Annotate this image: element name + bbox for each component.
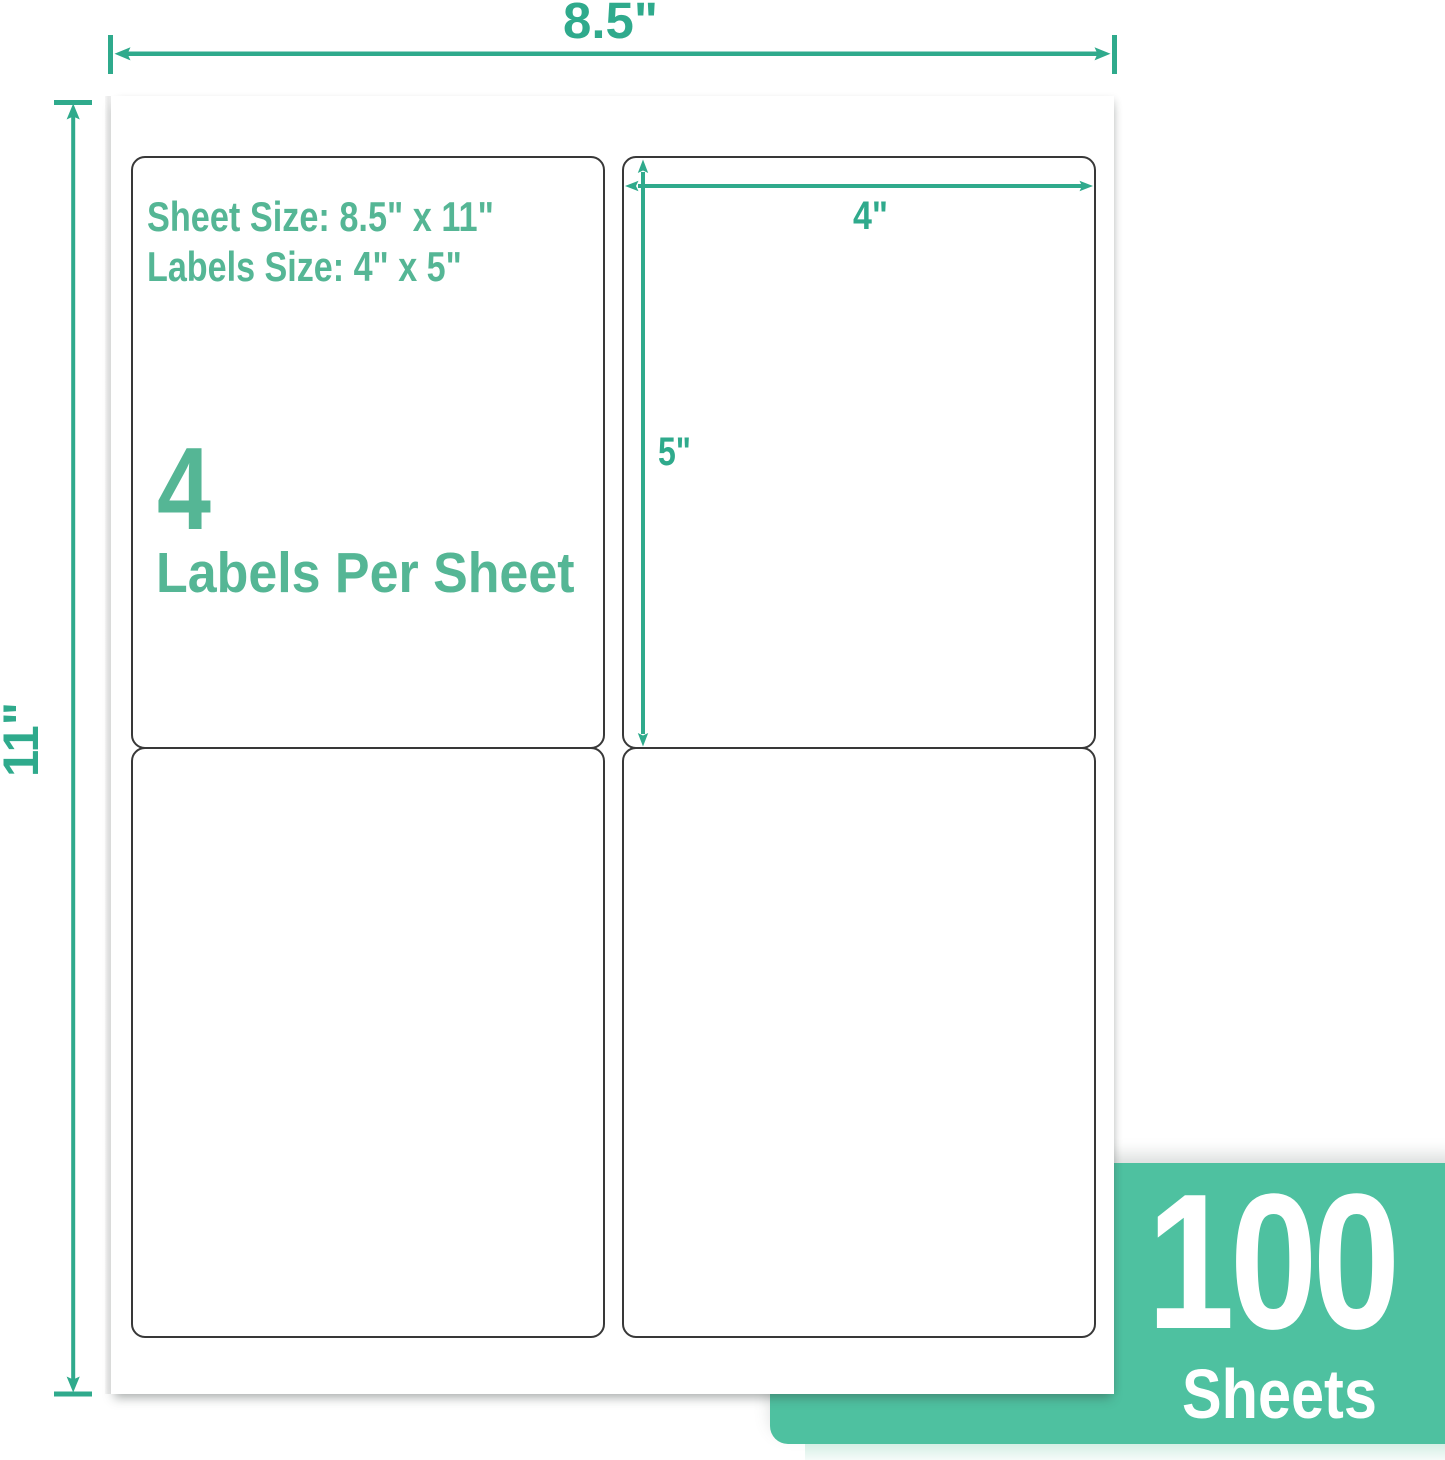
svg-text:8.5": 8.5" — [563, 0, 658, 49]
svg-text:4": 4" — [853, 194, 888, 238]
svg-text:11": 11" — [0, 702, 49, 777]
svg-text:5": 5" — [658, 430, 691, 474]
